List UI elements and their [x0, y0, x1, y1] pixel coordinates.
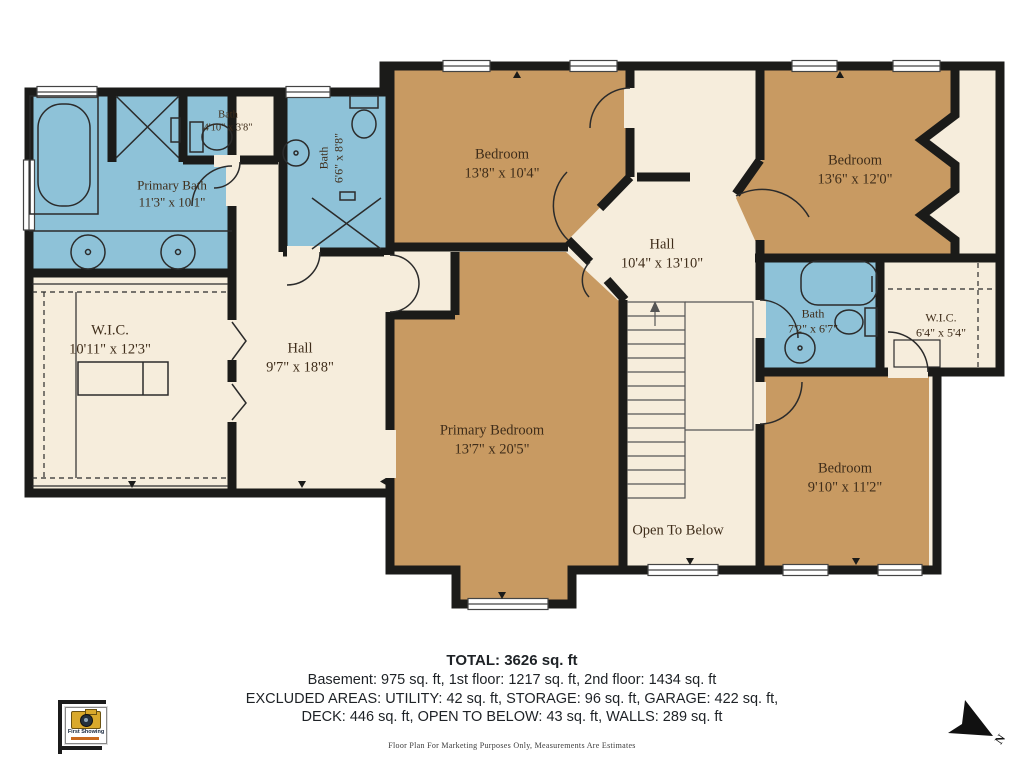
room-label-bath-upper: Bath 6'6" x 8'8" — [317, 133, 348, 183]
north-arrow-icon — [940, 692, 1020, 752]
room-label-primary-bath: Primary Bath 11'3" x 10'1" — [137, 177, 207, 210]
room-label-bedroom-bottom: Bedroom 9'10" x 11'2" — [808, 459, 883, 496]
room-label-primary-bedroom: Primary Bedroom 13'7" x 20'5" — [440, 421, 544, 458]
floor-plan-drawing — [0, 0, 1024, 648]
north-compass: N — [940, 692, 1020, 752]
room-label-hall-center: Hall 10'4" x 13'10" — [621, 235, 703, 272]
sign-arm — [58, 700, 106, 704]
room-label-bath-right: Bath 7'2" x 6'7" — [788, 307, 838, 338]
area-summary: TOTAL: 3626 sq. ft Basement: 975 sq. ft,… — [0, 652, 1024, 750]
total-area-text: TOTAL: 3626 sq. ft — [0, 652, 1024, 669]
sign-board: First Showing — [65, 707, 107, 744]
disclaimer-text: Floor Plan For Marketing Purposes Only, … — [0, 741, 1024, 750]
room-label-hall-left: Hall 9'7" x 18'8" — [266, 339, 334, 376]
room-label-bedroom-right: Bedroom 13'6" x 12'0" — [817, 151, 892, 188]
first-showing-logo: First Showing — [50, 694, 114, 758]
room-label-bedroom-top: Bedroom 13'8" x 10'4" — [464, 145, 539, 182]
room-label-bath-small: Bath 4'10" x 3'8" — [203, 109, 252, 136]
room-label-wic-right: W.I.C. 6'4" x 5'4" — [916, 311, 966, 342]
logo-brand-text: First Showing — [66, 729, 106, 735]
excluded-areas-text: EXCLUDED AREAS: UTILITY: 42 sq. ft, STOR… — [0, 691, 1024, 707]
room-label-open-to-below: Open To Below — [632, 522, 723, 541]
primary-closet-alcove — [390, 252, 455, 315]
floor-areas-text: Basement: 975 sq. ft, 1st floor: 1217 sq… — [0, 672, 1024, 688]
logo-tagline-bar — [71, 737, 99, 740]
room-label-wic-left: W.I.C. 10'11" x 12'3" — [69, 321, 151, 358]
floor-plan-page: Primary Bath 11'3" x 10'1" Bath 4'10" x … — [0, 0, 1024, 768]
camera-icon — [71, 711, 101, 729]
excluded-areas-text-2: DECK: 446 sq. ft, OPEN TO BELOW: 43 sq. … — [0, 709, 1024, 725]
sign-base — [62, 746, 102, 750]
